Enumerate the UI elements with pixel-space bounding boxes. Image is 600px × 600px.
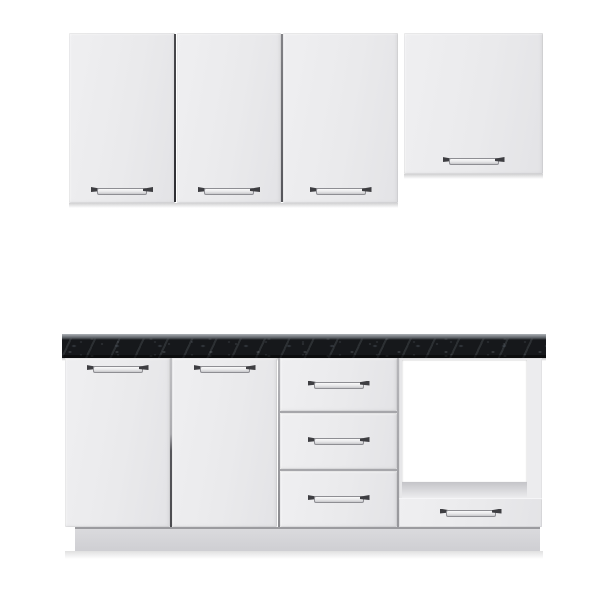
base-drawer-3 xyxy=(280,471,397,527)
door-handle-icon xyxy=(197,185,261,197)
appliance-base-drawer xyxy=(399,498,542,527)
base-drawer-2 xyxy=(280,413,397,469)
wall-cabinet-door-3 xyxy=(283,33,398,203)
appliance-compartment-opening xyxy=(402,360,527,482)
appliance-compartment-shelf xyxy=(402,482,527,498)
countertop xyxy=(62,334,546,358)
door-handle-icon xyxy=(86,363,150,375)
drawer-handle-icon xyxy=(307,435,371,447)
base-door-gap-line xyxy=(278,358,280,527)
drawer-handle-icon xyxy=(439,507,503,519)
base-cabinet-door-2 xyxy=(172,358,277,527)
handle-bar xyxy=(316,188,366,195)
base-door-gap-line xyxy=(170,358,172,527)
door-handle-icon xyxy=(309,185,373,197)
door-handle-icon xyxy=(90,185,154,197)
handle-bar xyxy=(204,188,254,195)
plinth-kickboard xyxy=(75,527,540,551)
handle-bar xyxy=(314,496,364,503)
handle-bar xyxy=(97,188,147,195)
wall-cabinet-door-2 xyxy=(177,33,281,203)
wall-door-gap-line xyxy=(174,34,176,202)
drawer-gap-line xyxy=(280,411,397,413)
wall-door-gap-line xyxy=(281,34,283,202)
handle-bar xyxy=(446,510,496,517)
handle-bar xyxy=(314,438,364,445)
drawer-handle-icon xyxy=(307,493,371,505)
handle-bar xyxy=(200,366,250,373)
wall-cabinet-door-4 xyxy=(404,33,543,174)
handle-bar xyxy=(314,382,364,389)
kitchen-cabinet-product-image xyxy=(0,0,600,600)
base-drawer-1 xyxy=(280,358,397,411)
door-handle-icon xyxy=(193,363,257,375)
door-handle-icon xyxy=(442,155,506,167)
base-cabinet-door-1 xyxy=(65,358,170,527)
wall-cabinet-door-1 xyxy=(69,33,175,203)
drawer-gap-line xyxy=(280,469,397,471)
wall-cabinet-bottom-shadow xyxy=(69,203,398,208)
floor-shadow xyxy=(65,551,543,559)
wall-cabinet-bottom-shadow xyxy=(404,174,543,179)
appliance-compartment-frame xyxy=(399,358,542,527)
handle-bar xyxy=(93,366,143,373)
handle-bar xyxy=(449,158,499,165)
drawer-handle-icon xyxy=(307,379,371,391)
